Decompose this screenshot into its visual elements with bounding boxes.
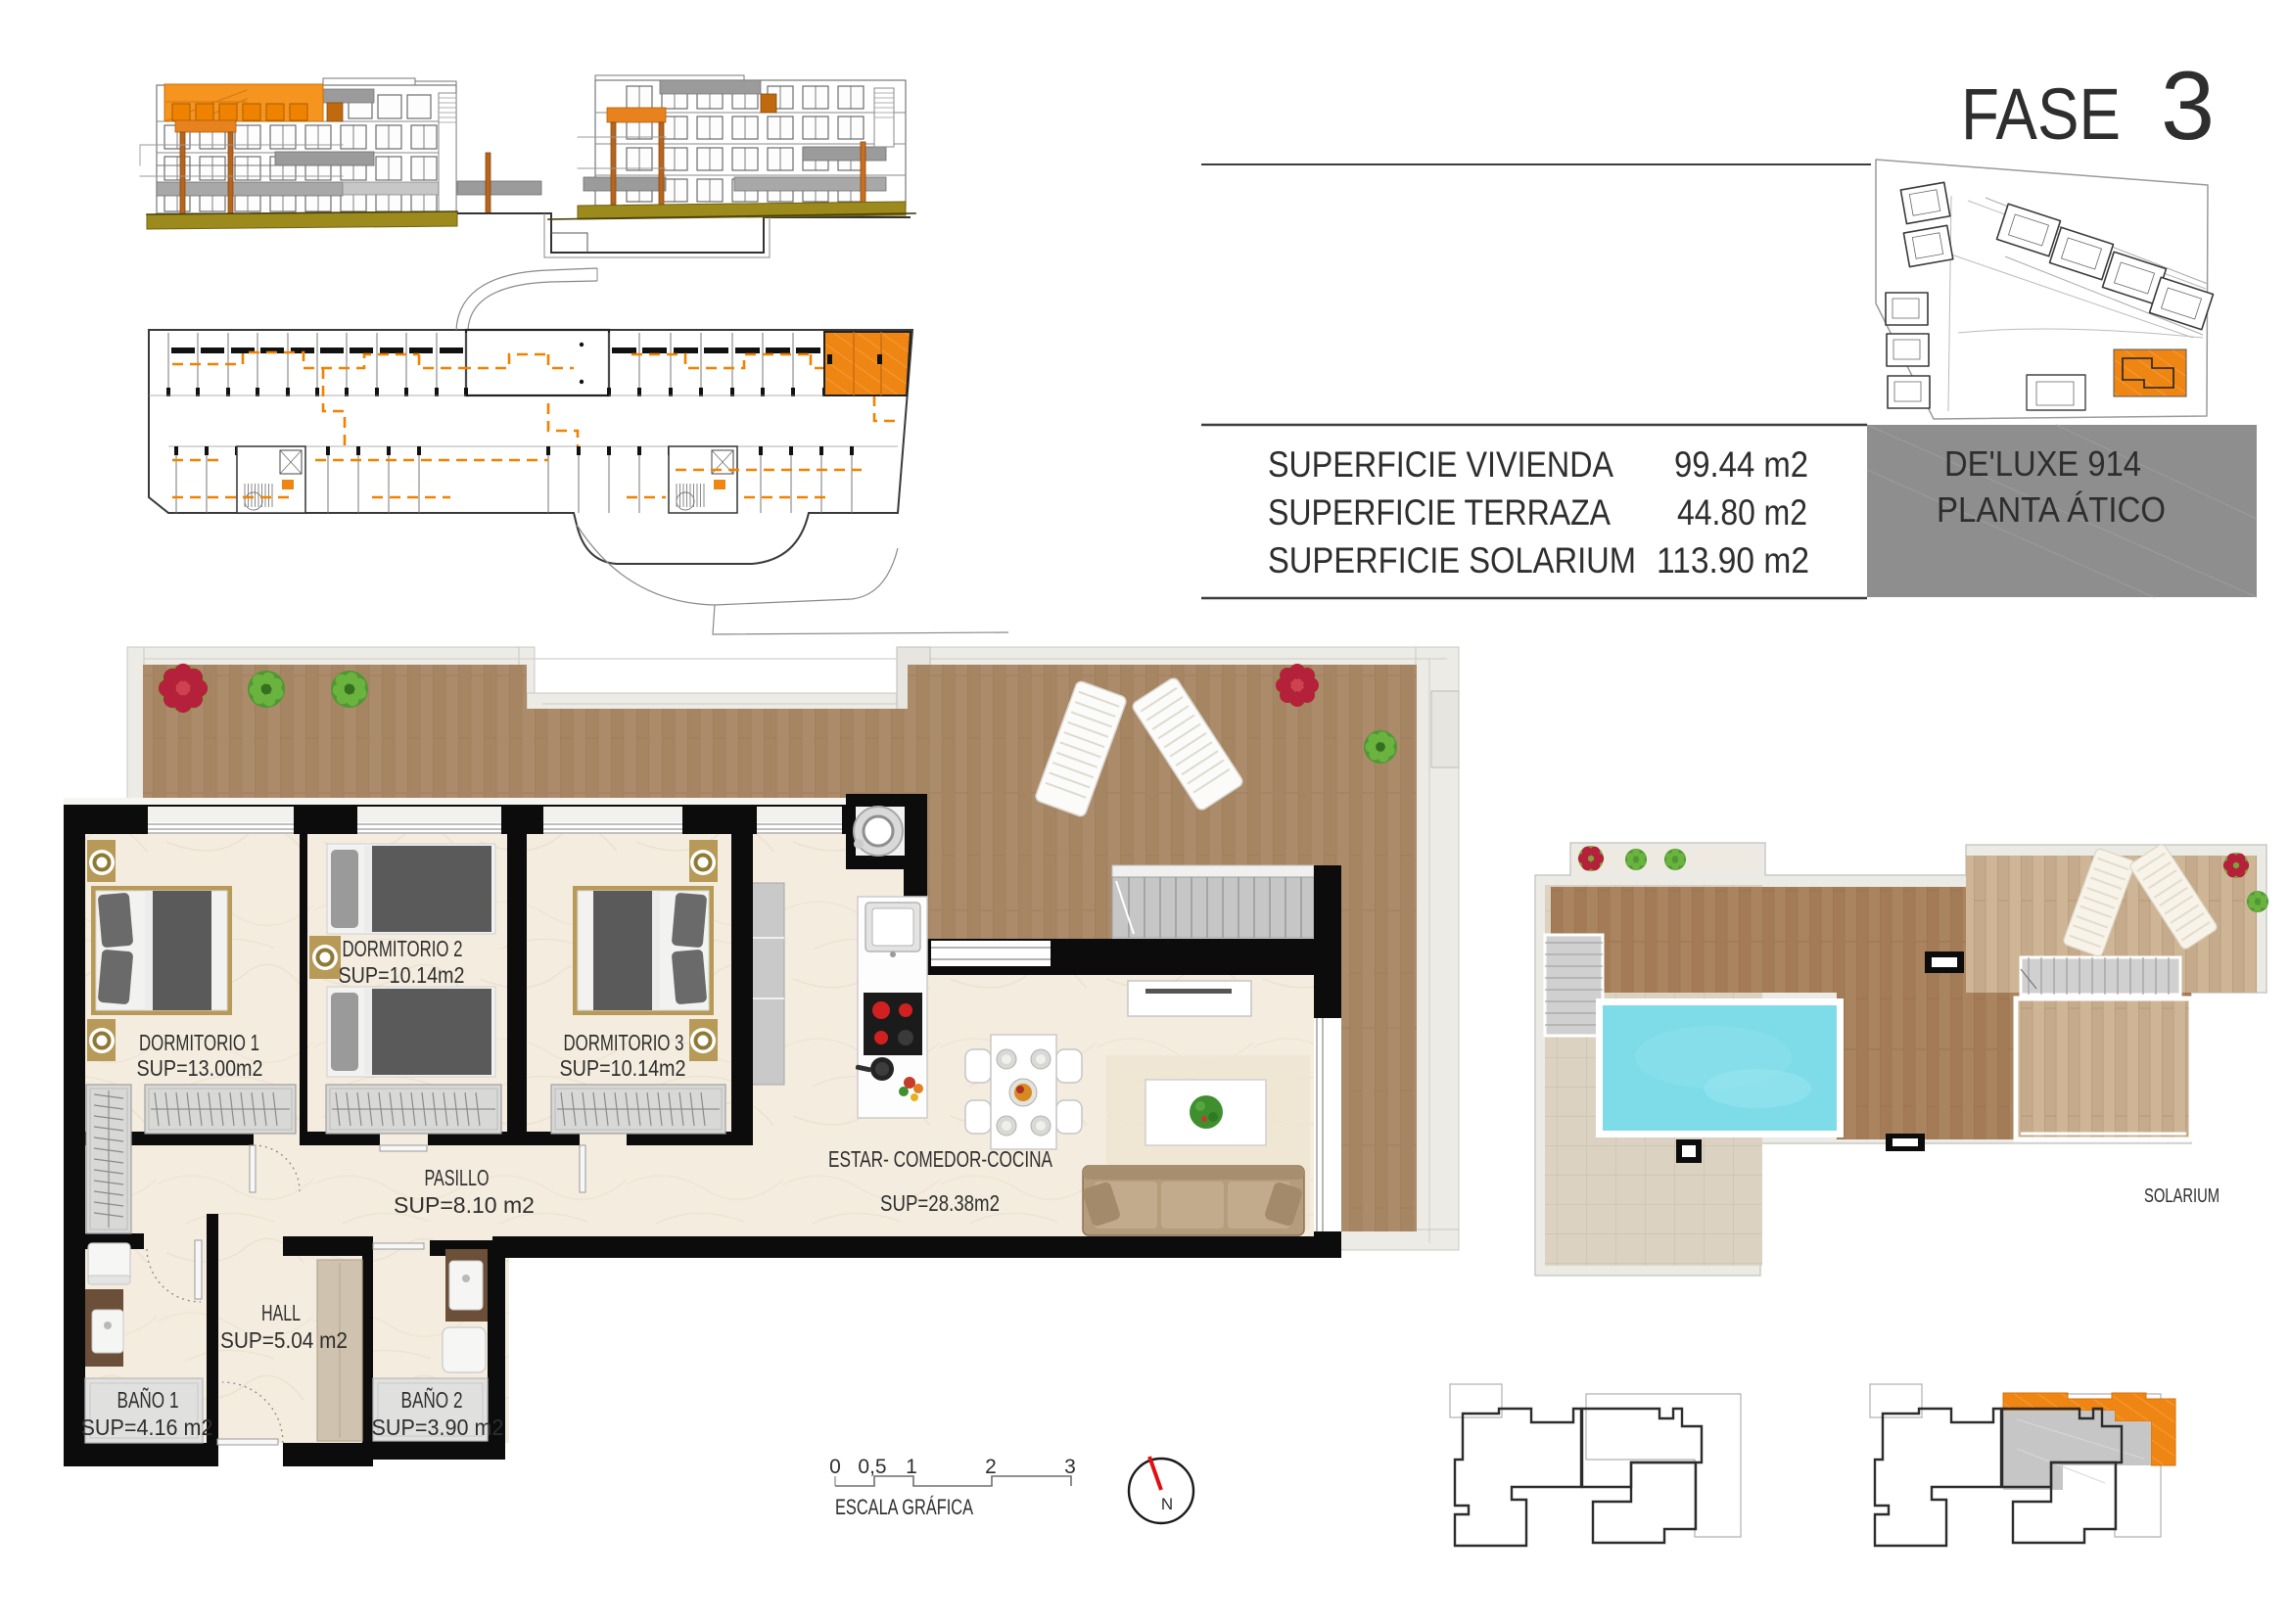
svg-text:SUPERFICIE VIVIENDA: SUPERFICIE VIVIENDA — [1268, 444, 1613, 485]
svg-text:SUP=10.14m2: SUP=10.14m2 — [339, 962, 465, 988]
svg-text:DE'LUXE 914: DE'LUXE 914 — [1944, 443, 2141, 484]
svg-text:113.90 m2: 113.90 m2 — [1657, 540, 1809, 580]
svg-text:0,5: 0,5 — [858, 1456, 886, 1478]
svg-text:99.44 m2: 99.44 m2 — [1674, 444, 1808, 485]
svg-text:SUPERFICIE SOLARIUM: SUPERFICIE SOLARIUM — [1268, 540, 1636, 580]
svg-text:DORMITORIO 3: DORMITORIO 3 — [564, 1030, 684, 1055]
svg-text:HALL: HALL — [261, 1300, 301, 1325]
svg-text:N: N — [1161, 1495, 1173, 1513]
svg-text:DORMITORIO 2: DORMITORIO 2 — [343, 936, 463, 961]
svg-text:ESTAR- COMEDOR-COCINA: ESTAR- COMEDOR-COCINA — [828, 1146, 1052, 1172]
svg-text:SOLARIUM: SOLARIUM — [2144, 1185, 2220, 1207]
svg-text:BAÑO 1: BAÑO 1 — [117, 1387, 179, 1413]
svg-text:3: 3 — [1064, 1456, 1076, 1478]
svg-text:SUP=5.04 m2: SUP=5.04 m2 — [220, 1327, 348, 1353]
svg-text:SUP=8.10 m2: SUP=8.10 m2 — [394, 1192, 535, 1218]
svg-text:ESCALA GRÁFICA: ESCALA GRÁFICA — [835, 1495, 973, 1519]
svg-text:FASE: FASE — [1961, 73, 2121, 155]
svg-text:DORMITORIO 1: DORMITORIO 1 — [139, 1030, 259, 1055]
svg-text:BAÑO 2: BAÑO 2 — [401, 1387, 463, 1413]
svg-text:SUP=3.90 m2: SUP=3.90 m2 — [372, 1415, 504, 1440]
svg-text:0: 0 — [829, 1456, 841, 1478]
svg-text:SUP=13.00m2: SUP=13.00m2 — [137, 1055, 263, 1081]
svg-text:44.80 m2: 44.80 m2 — [1677, 492, 1807, 533]
svg-text:PASILLO: PASILLO — [425, 1165, 490, 1190]
svg-text:SUP=10.14m2: SUP=10.14m2 — [560, 1055, 686, 1081]
svg-text:SUP=4.16 m2: SUP=4.16 m2 — [81, 1415, 213, 1440]
svg-text:PLANTA ÁTICO: PLANTA ÁTICO — [1937, 489, 2166, 530]
svg-text:SUP=28.38m2: SUP=28.38m2 — [880, 1190, 1000, 1216]
svg-text:SUPERFICIE TERRAZA: SUPERFICIE TERRAZA — [1268, 492, 1611, 533]
svg-text:1: 1 — [906, 1456, 917, 1478]
svg-text:3: 3 — [2161, 51, 2215, 160]
svg-text:2: 2 — [985, 1456, 997, 1478]
